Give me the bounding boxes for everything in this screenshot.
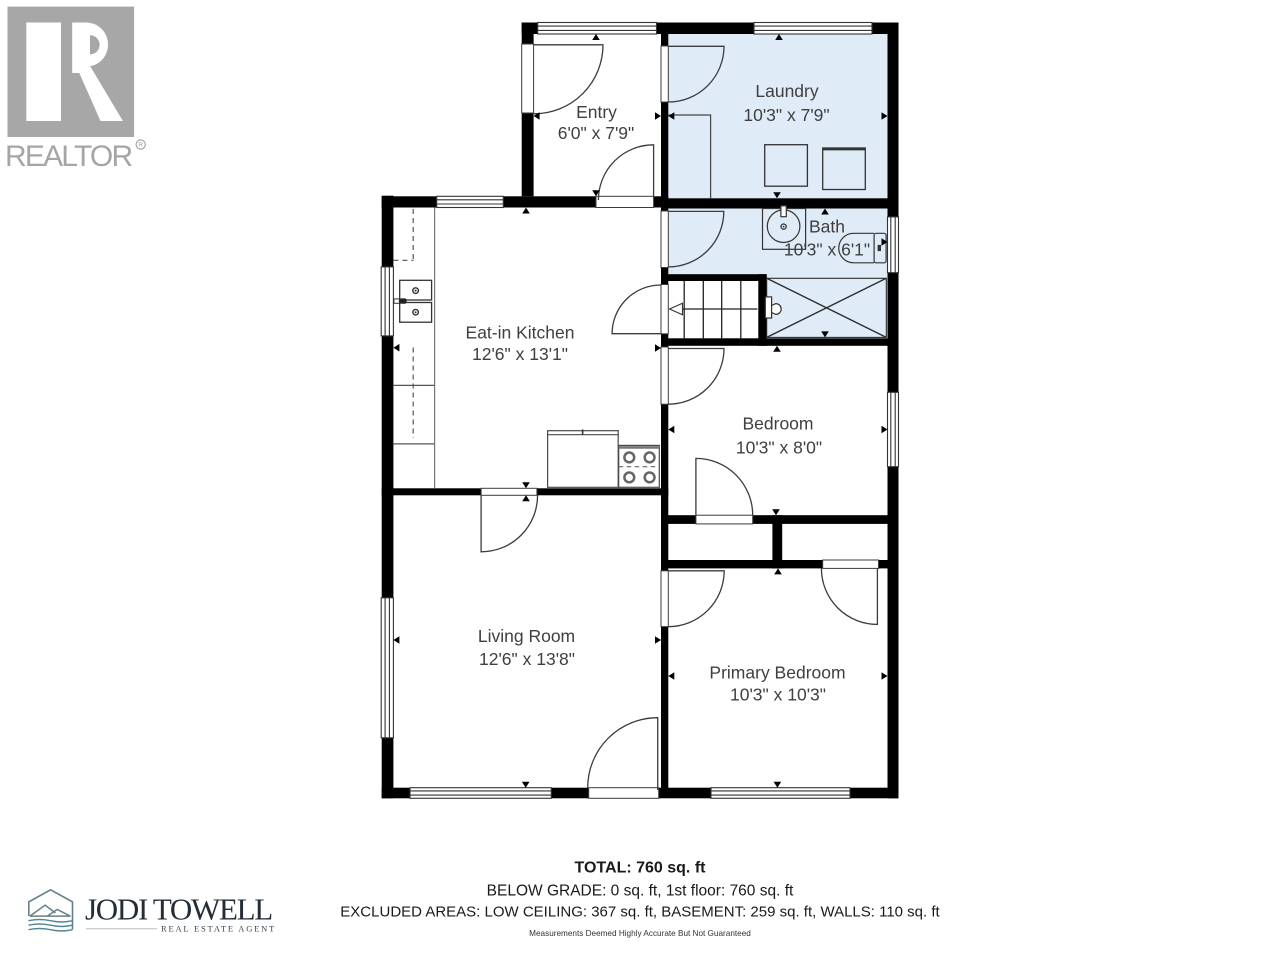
svg-text:10'3" x 10'3": 10'3" x 10'3": [730, 685, 826, 705]
svg-text:Eat-in Kitchen: Eat-in Kitchen: [466, 323, 575, 343]
svg-text:10'3" x 6'1": 10'3" x 6'1": [784, 240, 870, 260]
svg-text:Bath: Bath: [809, 217, 845, 237]
svg-text:6'0" x 7'9": 6'0" x 7'9": [558, 123, 635, 143]
svg-text:REAL ESTATE AGENT: REAL ESTATE AGENT: [161, 924, 276, 934]
svg-text:TOTAL: 760 sq. ft: TOTAL: 760 sq. ft: [575, 859, 707, 876]
svg-text:BELOW GRADE: 0 sq. ft, 1st flo: BELOW GRADE: 0 sq. ft, 1st floor: 760 sq…: [487, 882, 794, 899]
svg-text:Measurements Deemed Highly Acc: Measurements Deemed Highly Accurate But …: [529, 929, 751, 938]
svg-text:Entry: Entry: [576, 102, 617, 122]
svg-text:10'3" x 8'0": 10'3" x 8'0": [736, 438, 822, 458]
svg-text:EXCLUDED AREAS: LOW CEILING: 3: EXCLUDED AREAS: LOW CEILING: 367 sq. ft,…: [340, 903, 940, 920]
svg-text:R: R: [138, 142, 143, 149]
svg-text:12'6" x 13'1": 12'6" x 13'1": [472, 344, 568, 364]
svg-text:Laundry: Laundry: [755, 81, 818, 101]
svg-text:REALTOR: REALTOR: [5, 140, 132, 173]
svg-text:10'3" x 7'9": 10'3" x 7'9": [743, 105, 829, 125]
svg-text:Bedroom: Bedroom: [742, 414, 813, 434]
svg-text:Living Room: Living Room: [478, 626, 575, 646]
svg-text:JODI TOWELL: JODI TOWELL: [85, 891, 272, 926]
svg-text:Primary Bedroom: Primary Bedroom: [709, 663, 845, 683]
svg-text:12'6" x 13'8": 12'6" x 13'8": [479, 649, 575, 669]
